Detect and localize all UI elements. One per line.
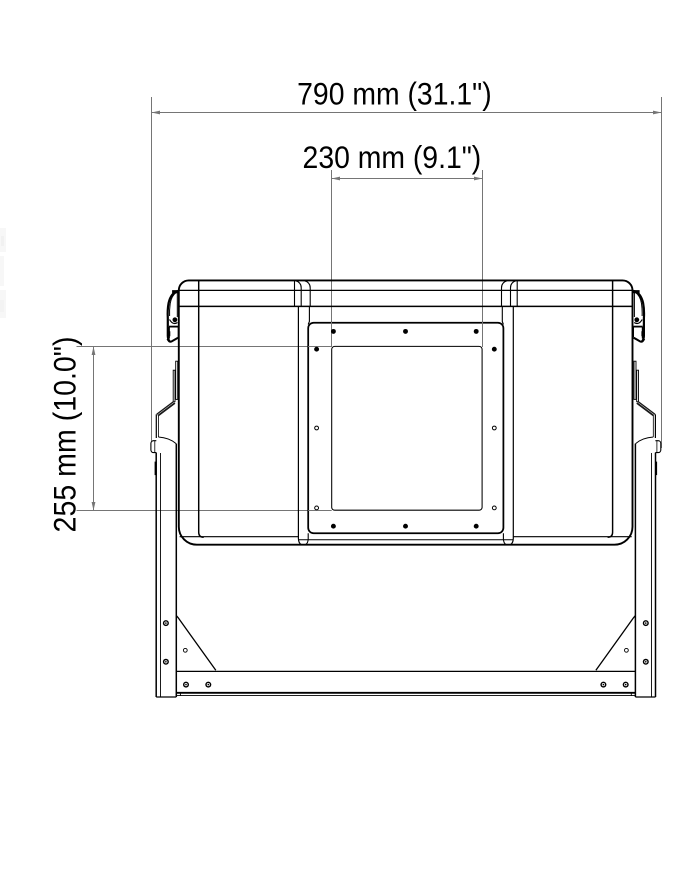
svg-text:230 mm (9.1"): 230 mm (9.1") bbox=[303, 139, 482, 175]
svg-text:255 mm (10.0"): 255 mm (10.0") bbox=[47, 337, 83, 533]
svg-text:790 mm (31.1"): 790 mm (31.1") bbox=[297, 76, 492, 112]
